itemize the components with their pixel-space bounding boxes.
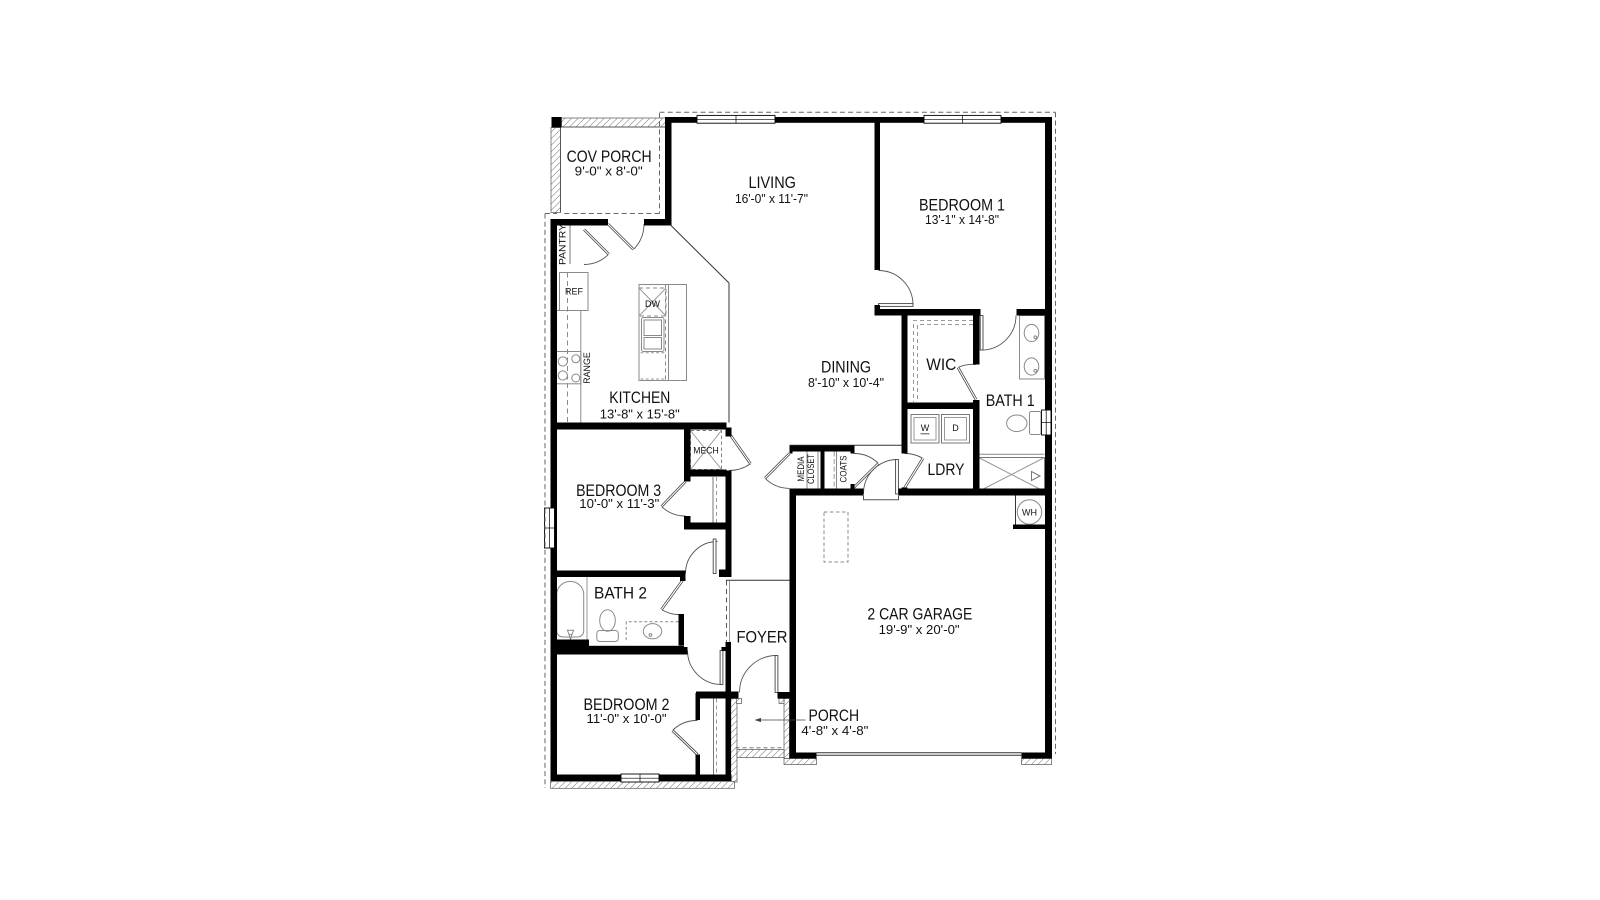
svg-text:DINING: DINING — [821, 359, 871, 377]
svg-text:CLOSET: CLOSET — [806, 454, 816, 484]
svg-text:MEDIA: MEDIA — [796, 457, 806, 482]
svg-text:WH: WH — [1022, 508, 1037, 518]
svg-text:9'-0" x 8'-0": 9'-0" x 8'-0" — [575, 164, 643, 178]
svg-text:LDRY: LDRY — [928, 461, 965, 479]
svg-text:BEDROOM 1: BEDROOM 1 — [919, 197, 1005, 215]
svg-text:16'-0" x 11'-7": 16'-0" x 11'-7" — [735, 192, 808, 206]
svg-text:PANTRY: PANTRY — [558, 224, 568, 265]
svg-text:MECH: MECH — [693, 446, 718, 456]
svg-text:FOYER: FOYER — [737, 629, 788, 647]
svg-text:D: D — [952, 423, 959, 433]
svg-text:BATH 2: BATH 2 — [594, 585, 647, 603]
svg-text:COATS: COATS — [838, 456, 848, 483]
svg-text:11'-0" x 10'-0": 11'-0" x 10'-0" — [587, 712, 667, 726]
svg-text:8'-10" x 10'-4": 8'-10" x 10'-4" — [808, 376, 884, 390]
svg-text:REF: REF — [565, 287, 584, 297]
svg-text:PORCH: PORCH — [809, 707, 860, 725]
svg-text:2 CAR GARAGE: 2 CAR GARAGE — [867, 606, 972, 624]
svg-text:WIC: WIC — [926, 356, 956, 374]
svg-text:W: W — [921, 423, 930, 433]
svg-text:DW: DW — [645, 299, 660, 309]
svg-text:KITCHEN: KITCHEN — [609, 389, 670, 407]
svg-text:LIVING: LIVING — [748, 174, 796, 192]
svg-text:BATH 1: BATH 1 — [986, 392, 1035, 410]
svg-text:COV PORCH: COV PORCH — [567, 148, 652, 166]
svg-text:4'-8" x 4'-8": 4'-8" x 4'-8" — [801, 724, 868, 738]
svg-text:10'-0" x 11'-3": 10'-0" x 11'-3" — [579, 497, 659, 511]
svg-text:19'-9" x 20'-0": 19'-9" x 20'-0" — [879, 623, 960, 637]
svg-text:13'-1" x 14'-8": 13'-1" x 14'-8" — [925, 213, 999, 227]
svg-text:RANGE: RANGE — [582, 352, 592, 384]
svg-text:13'-8" x 15'-8": 13'-8" x 15'-8" — [600, 407, 680, 421]
